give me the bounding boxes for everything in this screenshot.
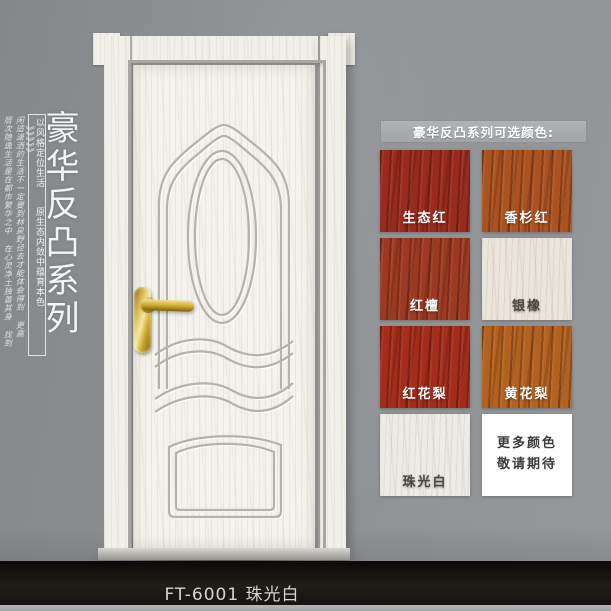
swatch-label: 珠光白 (380, 471, 470, 490)
swatch-label: 红檀 (380, 295, 470, 314)
swatch-label: 生态红 (380, 207, 470, 226)
color-swatch: 红花梨 (380, 326, 470, 408)
color-swatch: 生态红 (380, 150, 470, 232)
color-swatch: 香杉红 (482, 150, 572, 232)
color-swatch: 红檀 (380, 238, 470, 320)
door-handle-lever (141, 299, 194, 312)
swatch-label: 红花梨 (380, 383, 470, 402)
floor-baseboard (0, 605, 611, 611)
color-swatch: 更多颜色 敬请期待 (482, 414, 572, 496)
swatch-grid: 生态红 香杉红 红檀 银橡 红花梨 黄花梨 珠光白 更多颜色 敬请期待 (380, 150, 572, 496)
color-swatch: 珠光白 (380, 414, 470, 496)
swatch-label: 更多颜色 敬请期待 (482, 414, 572, 496)
calligraphy-text-2: 层次隐逸生活是在都市繁华之中 在心灵净土独善其身 找到 (3, 116, 11, 351)
swatch-label: 银橡 (482, 295, 572, 314)
color-swatch: 银橡 (482, 238, 572, 320)
swatch-label: 香杉红 (482, 207, 572, 226)
series-title: 豪华反凸系列 (42, 110, 76, 360)
model-caption: FT-6001 珠光白 (82, 580, 382, 605)
calligraphy-text-1: 闲适潇洒的生活不一定要到林泉野径去才能体会得到 更高 (15, 116, 23, 351)
poster-root: 层次隐逸生活是在都市繁华之中 在心灵净土独善其身 找到 闲适潇洒的生活不一定要到… (0, 0, 611, 611)
door-sill (98, 548, 350, 560)
chevron-marks: 》》》》》 (24, 126, 34, 158)
color-swatch: 黄花梨 (482, 326, 572, 408)
color-panel-header: 豪华反凸系列可选颜色: (380, 120, 587, 143)
swatch-label: 黄花梨 (482, 383, 572, 402)
